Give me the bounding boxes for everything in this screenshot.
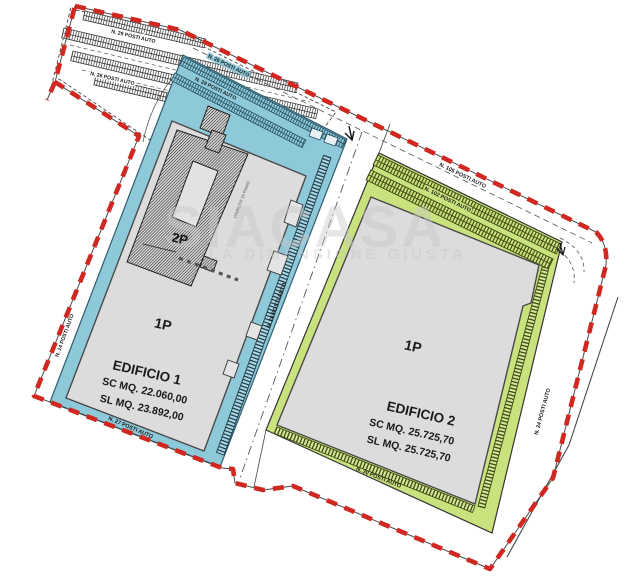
svg-text:LA DIMENSIONE GIUSTA: LA DIMENSIONE GIUSTA	[209, 246, 467, 263]
